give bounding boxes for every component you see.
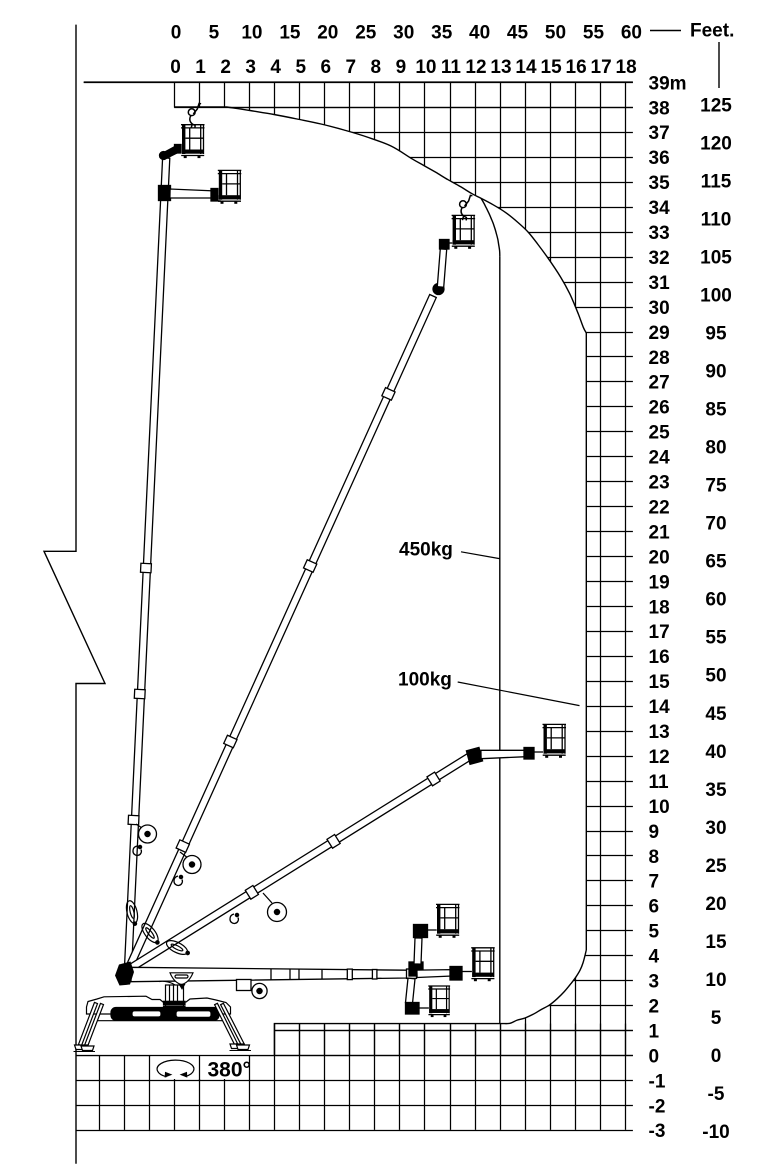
svg-text:9: 9 <box>649 822 660 843</box>
svg-text:12: 12 <box>649 747 670 768</box>
svg-text:4: 4 <box>649 947 660 968</box>
svg-text:25: 25 <box>705 856 727 877</box>
svg-text:95: 95 <box>705 324 727 345</box>
svg-text:75: 75 <box>705 476 727 497</box>
svg-text:2: 2 <box>220 57 231 78</box>
svg-text:19: 19 <box>649 572 670 593</box>
svg-text:18: 18 <box>649 597 670 618</box>
svg-text:5: 5 <box>209 23 220 44</box>
svg-text:-10: -10 <box>702 1122 729 1143</box>
svg-text:17: 17 <box>649 622 670 643</box>
svg-text:50: 50 <box>545 23 566 44</box>
svg-text:55: 55 <box>583 23 605 44</box>
svg-text:10: 10 <box>705 970 726 991</box>
svg-text:15: 15 <box>279 23 301 44</box>
svg-text:0: 0 <box>649 1046 660 1067</box>
svg-text:-3: -3 <box>649 1121 666 1142</box>
svg-text:11: 11 <box>441 57 462 78</box>
svg-text:20: 20 <box>705 894 726 915</box>
svg-text:23: 23 <box>649 473 670 494</box>
svg-text:38: 38 <box>649 98 670 119</box>
svg-text:25: 25 <box>649 423 671 444</box>
svg-text:70: 70 <box>705 514 726 535</box>
svg-text:40: 40 <box>469 23 490 44</box>
svg-text:1: 1 <box>195 57 206 78</box>
svg-text:7: 7 <box>346 57 357 78</box>
svg-text:35: 35 <box>705 780 727 801</box>
svg-text:33: 33 <box>649 223 670 244</box>
svg-text:24: 24 <box>649 448 671 469</box>
svg-text:26: 26 <box>649 398 670 419</box>
svg-text:29: 29 <box>649 323 670 344</box>
svg-text:11: 11 <box>649 772 670 793</box>
svg-text:80: 80 <box>705 438 726 459</box>
svg-text:18: 18 <box>616 57 637 78</box>
svg-text:380°: 380° <box>208 1059 251 1082</box>
svg-text:6: 6 <box>649 897 660 918</box>
svg-text:13: 13 <box>649 722 670 743</box>
svg-text:20: 20 <box>317 23 338 44</box>
svg-text:105: 105 <box>700 248 732 269</box>
svg-text:0: 0 <box>711 1046 722 1067</box>
svg-text:Feet.: Feet. <box>690 21 734 42</box>
svg-text:-1: -1 <box>649 1071 666 1092</box>
svg-text:36: 36 <box>649 148 670 169</box>
svg-text:17: 17 <box>591 57 612 78</box>
svg-text:5: 5 <box>711 1008 722 1029</box>
svg-text:5: 5 <box>296 57 307 78</box>
svg-text:2: 2 <box>649 997 660 1018</box>
svg-text:5: 5 <box>649 922 660 943</box>
svg-text:16: 16 <box>566 57 587 78</box>
svg-text:39m: 39m <box>649 73 687 94</box>
svg-text:110: 110 <box>701 209 732 230</box>
svg-text:15: 15 <box>705 932 727 953</box>
svg-text:30: 30 <box>393 23 414 44</box>
svg-text:45: 45 <box>705 704 727 725</box>
svg-text:10: 10 <box>649 797 670 818</box>
svg-text:3: 3 <box>649 972 660 993</box>
svg-text:31: 31 <box>649 273 671 294</box>
svg-text:100: 100 <box>700 286 732 307</box>
svg-text:450kg: 450kg <box>399 540 453 561</box>
svg-text:65: 65 <box>705 552 727 573</box>
svg-text:125: 125 <box>700 95 732 116</box>
svg-text:22: 22 <box>649 498 670 519</box>
svg-text:27: 27 <box>649 373 670 394</box>
svg-text:115: 115 <box>701 171 732 192</box>
svg-text:85: 85 <box>705 400 727 421</box>
svg-text:21: 21 <box>649 522 671 543</box>
svg-text:13: 13 <box>490 57 511 78</box>
svg-text:50: 50 <box>705 666 726 687</box>
svg-text:12: 12 <box>465 57 486 78</box>
svg-text:100kg: 100kg <box>398 670 452 691</box>
svg-text:14: 14 <box>515 57 537 78</box>
svg-text:35: 35 <box>649 173 671 194</box>
svg-text:40: 40 <box>705 742 726 763</box>
svg-text:60: 60 <box>705 590 726 611</box>
svg-text:3: 3 <box>245 57 256 78</box>
svg-text:30: 30 <box>649 298 670 319</box>
svg-text:35: 35 <box>431 23 453 44</box>
svg-text:34: 34 <box>649 198 671 219</box>
svg-text:15: 15 <box>541 57 563 78</box>
svg-text:7: 7 <box>649 872 660 893</box>
svg-text:30: 30 <box>705 818 726 839</box>
svg-text:14: 14 <box>649 697 671 718</box>
svg-text:-5: -5 <box>708 1084 725 1105</box>
svg-text:9: 9 <box>396 57 407 78</box>
svg-text:37: 37 <box>649 123 670 144</box>
svg-text:-2: -2 <box>649 1096 666 1117</box>
svg-text:1: 1 <box>649 1021 660 1042</box>
svg-text:4: 4 <box>270 57 281 78</box>
svg-text:0: 0 <box>171 23 182 44</box>
svg-text:25: 25 <box>355 23 377 44</box>
svg-text:60: 60 <box>621 23 642 44</box>
svg-text:10: 10 <box>415 57 436 78</box>
svg-text:20: 20 <box>649 547 670 568</box>
svg-text:0: 0 <box>170 57 181 78</box>
svg-text:6: 6 <box>321 57 332 78</box>
svg-text:55: 55 <box>705 628 727 649</box>
svg-text:45: 45 <box>507 23 529 44</box>
svg-text:90: 90 <box>705 362 726 383</box>
svg-text:8: 8 <box>649 847 660 868</box>
svg-text:10: 10 <box>241 23 262 44</box>
svg-text:16: 16 <box>649 647 670 668</box>
svg-text:15: 15 <box>649 672 671 693</box>
svg-text:120: 120 <box>700 133 732 154</box>
svg-text:28: 28 <box>649 348 670 369</box>
svg-text:32: 32 <box>649 248 670 269</box>
svg-text:8: 8 <box>371 57 382 78</box>
